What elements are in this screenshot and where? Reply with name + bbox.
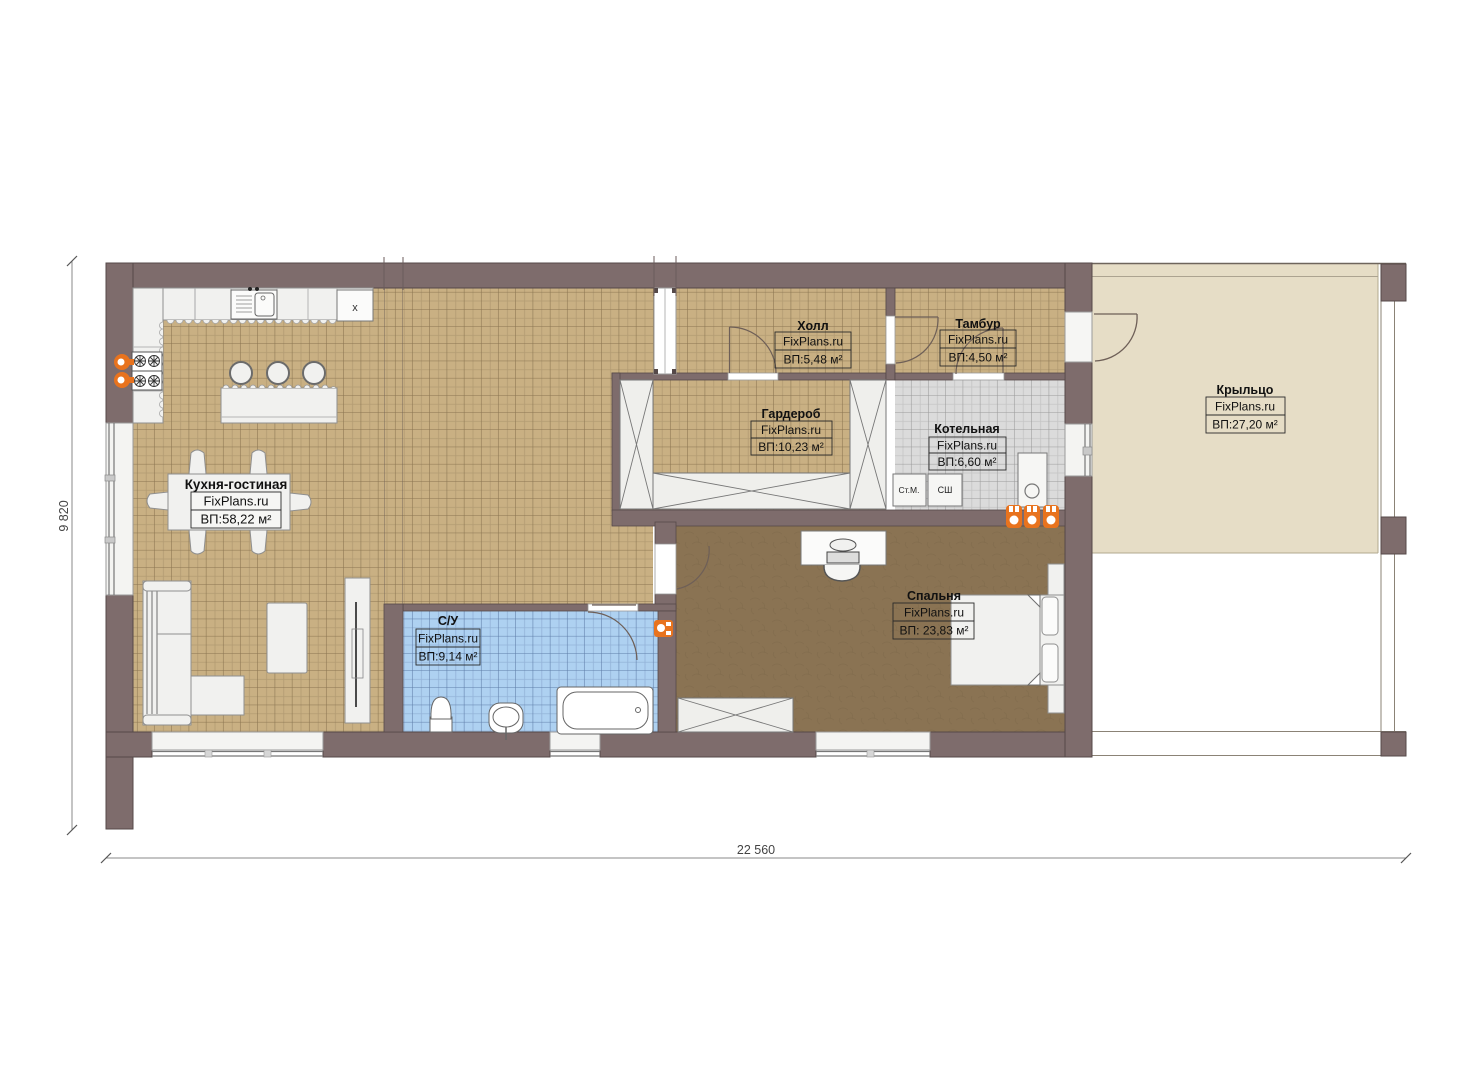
- svg-text:FixPlans.ru: FixPlans.ru: [203, 494, 268, 509]
- svg-text:ВП:6,60 м²: ВП:6,60 м²: [938, 455, 997, 469]
- svg-text:Кухня-гостиная: Кухня-гостиная: [185, 477, 288, 492]
- svg-text:Котельная: Котельная: [934, 422, 999, 436]
- svg-text:Ст.М.: Ст.М.: [899, 485, 920, 495]
- svg-text:ВП:27,20 м²: ВП:27,20 м²: [1212, 418, 1278, 432]
- svg-text:ВП:5,48 м²: ВП:5,48 м²: [784, 353, 843, 367]
- svg-text:22 560: 22 560: [737, 843, 775, 857]
- svg-text:ВП:9,14 м²: ВП:9,14 м²: [419, 650, 478, 664]
- svg-text:Холл: Холл: [797, 319, 828, 333]
- svg-text:ВП:58,22 м²: ВП:58,22 м²: [200, 512, 272, 527]
- svg-text:FixPlans.ru: FixPlans.ru: [418, 632, 478, 646]
- svg-text:С/У: С/У: [438, 614, 459, 628]
- svg-text:FixPlans.ru: FixPlans.ru: [783, 335, 843, 349]
- svg-text:FixPlans.ru: FixPlans.ru: [761, 423, 821, 437]
- svg-text:Тамбур: Тамбур: [955, 317, 1001, 331]
- svg-text:FixPlans.ru: FixPlans.ru: [948, 333, 1008, 347]
- svg-text:Спальня: Спальня: [907, 589, 961, 603]
- svg-text:Крыльцо: Крыльцо: [1217, 383, 1274, 397]
- svg-text:FixPlans.ru: FixPlans.ru: [1215, 400, 1275, 414]
- svg-text:СШ: СШ: [938, 485, 953, 495]
- svg-text:ВП: 23,83 м²: ВП: 23,83 м²: [900, 624, 969, 638]
- svg-text:Гардероб: Гардероб: [761, 407, 820, 421]
- svg-text:FixPlans.ru: FixPlans.ru: [937, 439, 997, 453]
- svg-text:9 820: 9 820: [57, 500, 71, 531]
- svg-text:ВП:10,23 м²: ВП:10,23 м²: [758, 440, 824, 454]
- svg-text:ВП:4,50 м²: ВП:4,50 м²: [949, 351, 1008, 365]
- svg-text:FixPlans.ru: FixPlans.ru: [904, 606, 964, 620]
- svg-text:x: x: [352, 302, 358, 314]
